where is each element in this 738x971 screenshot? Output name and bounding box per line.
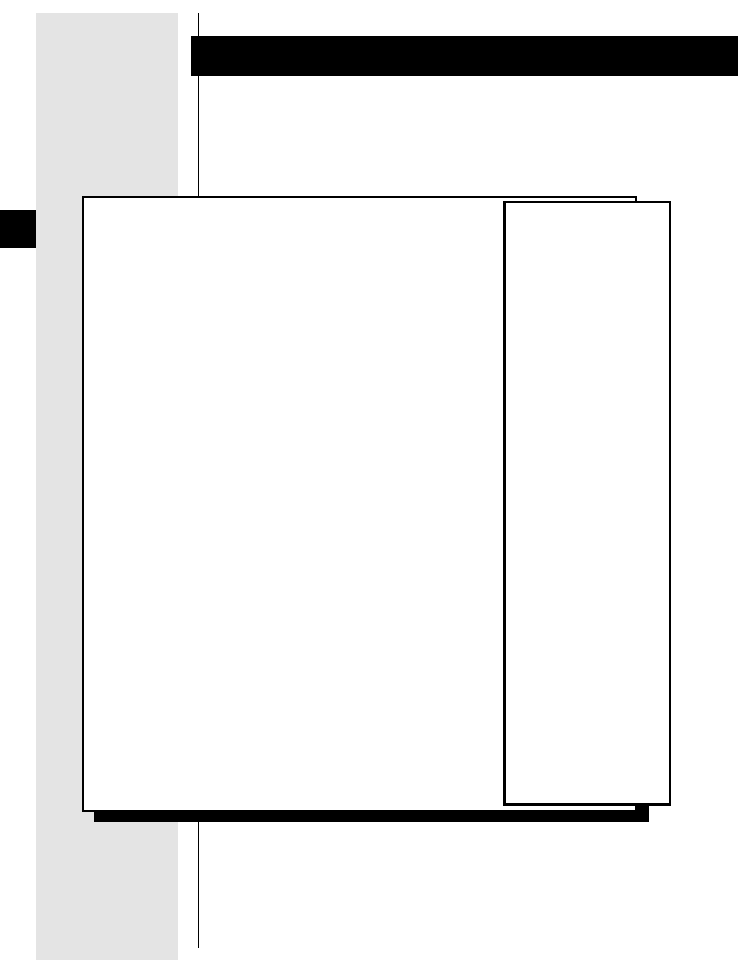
left-edge-marker xyxy=(0,210,36,248)
header-bar xyxy=(191,36,738,76)
page xyxy=(0,0,738,971)
side-panel xyxy=(503,201,671,806)
